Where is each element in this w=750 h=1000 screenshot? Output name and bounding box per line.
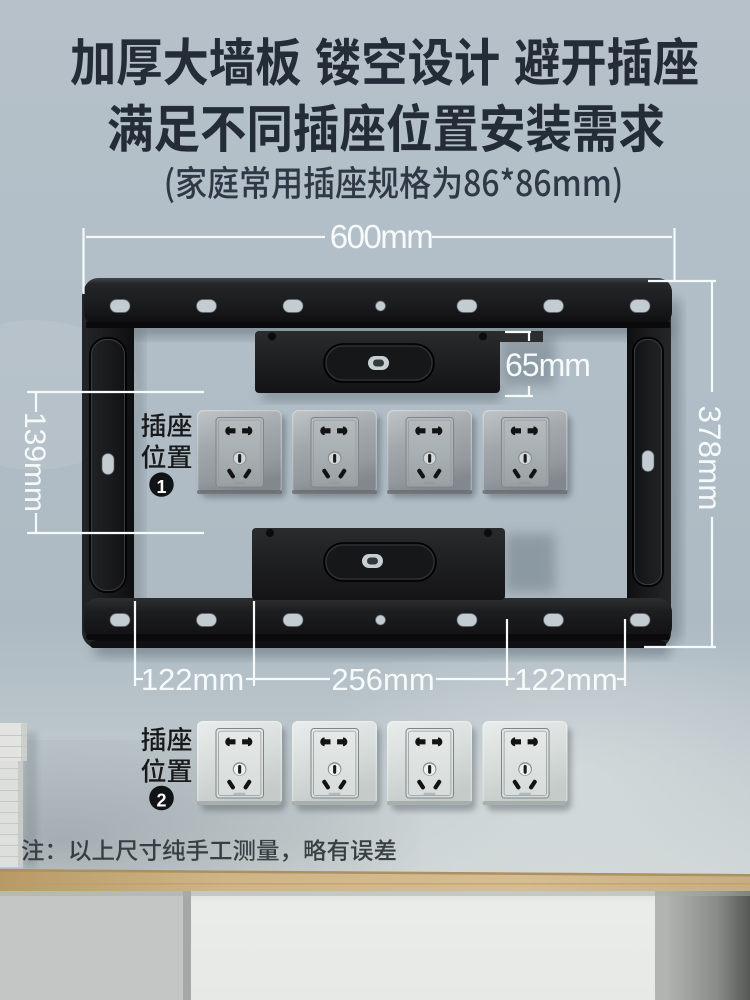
svg-text:378mm: 378mm xyxy=(692,405,728,510)
svg-text:65mm: 65mm xyxy=(505,347,590,383)
svg-text:256mm: 256mm xyxy=(331,662,434,697)
svg-text:600mm: 600mm xyxy=(330,218,433,255)
svg-text:2: 2 xyxy=(156,791,166,811)
svg-text:1: 1 xyxy=(156,477,166,497)
svg-text:139mm: 139mm xyxy=(18,412,51,512)
svg-text:122mm: 122mm xyxy=(514,662,617,697)
svg-text:122mm: 122mm xyxy=(141,662,244,697)
